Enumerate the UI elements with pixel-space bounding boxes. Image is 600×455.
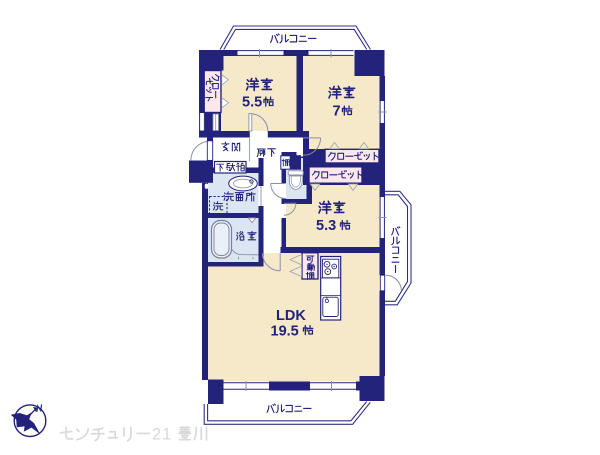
- svg-text:5.3: 5.3: [316, 218, 336, 234]
- svg-text:7: 7: [333, 104, 341, 120]
- svg-text:21: 21: [152, 426, 172, 444]
- svg-text:LDK: LDK: [276, 308, 306, 324]
- svg-text:19.5: 19.5: [271, 324, 299, 340]
- svg-text:5.5: 5.5: [242, 95, 262, 111]
